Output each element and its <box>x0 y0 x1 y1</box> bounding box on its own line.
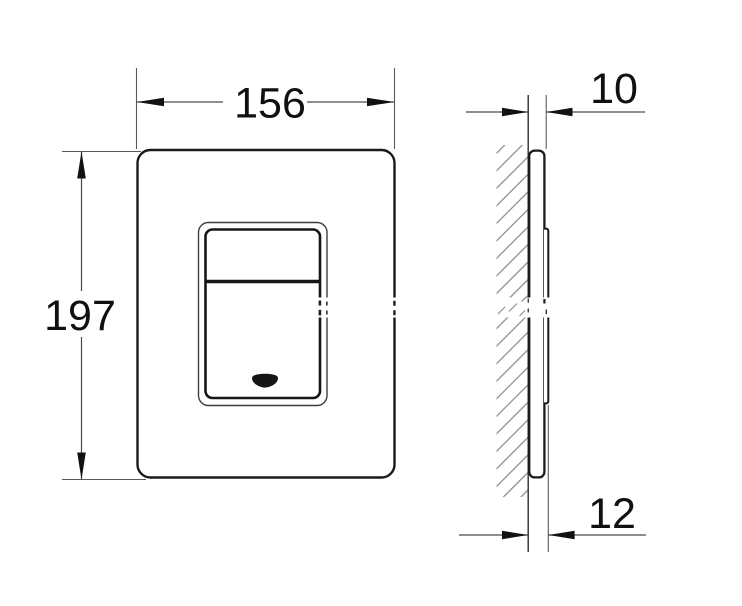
arrowhead-right-icon <box>502 108 528 116</box>
dimension-width: 156 <box>137 68 395 149</box>
dimension-depth: 12 <box>459 490 646 539</box>
dim-thickness-label: 10 <box>590 65 638 113</box>
technical-drawing: 156 197 10 12 <box>0 0 742 606</box>
arrowhead-left-icon <box>548 531 574 539</box>
arrowhead-left-icon <box>137 98 164 107</box>
dimension-thickness: 10 <box>466 65 645 116</box>
watermark-band <box>312 298 552 318</box>
drawing-canvas: 156 197 10 12 <box>0 0 742 606</box>
arrowhead-right-icon <box>367 98 394 107</box>
wall-hatching <box>497 145 529 497</box>
watermark <box>312 296 552 318</box>
side-view <box>497 95 549 552</box>
dim-width-label: 156 <box>234 80 306 128</box>
arrowhead-right-icon <box>502 531 528 539</box>
arrowhead-up-icon <box>77 152 86 179</box>
dim-depth-label: 12 <box>588 490 636 538</box>
dim-height-label: 197 <box>44 292 116 340</box>
dimension-height: 197 <box>44 152 146 480</box>
arrowhead-left-icon <box>546 108 572 116</box>
arrowhead-down-icon <box>77 453 86 480</box>
